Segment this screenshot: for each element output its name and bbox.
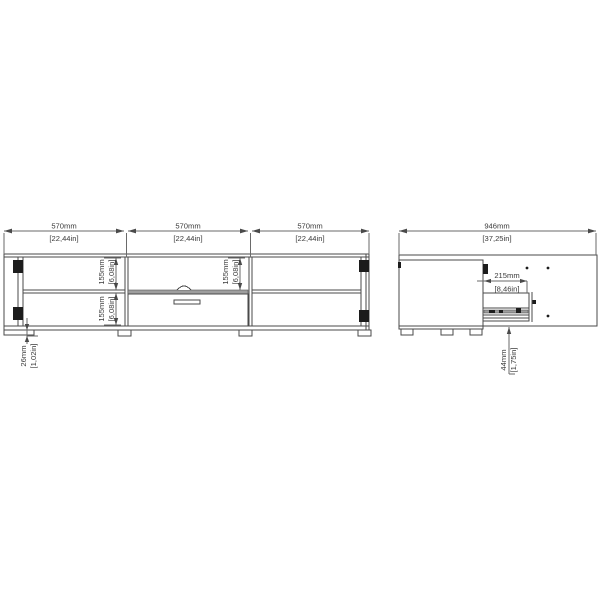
side-foot-3 — [470, 329, 482, 335]
dim-label-mm: 570mm — [297, 222, 322, 231]
technical-drawing-page: 570mm [22,44in] 570mm [22,44in] 570mm [2… — [0, 0, 600, 600]
dim-front-width-1: 570mm [22,44in] — [4, 222, 124, 244]
front-foot-3 — [239, 330, 252, 336]
dim-label-inch: [1,75in] — [509, 348, 518, 373]
side-view — [398, 255, 597, 335]
side-left-fitting — [398, 262, 401, 268]
dim-label-inch: [6,08in] — [107, 297, 116, 322]
drawer-handle-slot — [174, 300, 200, 304]
drawer-runner-stop — [516, 308, 521, 313]
dim-label-mm: 155mm — [97, 259, 106, 284]
dim-label-mm: 44mm — [499, 349, 508, 370]
side-cabinet-body — [399, 260, 483, 326]
dim-label-mm: 155mm — [221, 259, 230, 284]
dim-side-overall: 946mm [37,25in] — [399, 222, 596, 256]
dim-label-inch: [6,08in] — [231, 260, 240, 285]
dim-label-mm: 26mm — [19, 345, 28, 366]
side-catch-fitting — [483, 264, 488, 274]
dim-label-inch: [22,44in] — [173, 234, 202, 243]
front-view — [4, 254, 371, 336]
dim-label-inch: [6,08in] — [107, 260, 116, 285]
dim-label-mm: 215mm — [494, 271, 519, 280]
dim-front-width-3: 570mm [22,44in] — [252, 222, 369, 244]
drawer-edge-fitting — [533, 300, 537, 304]
dowel-hole-1 — [526, 267, 529, 270]
right-door-hinge-bottom — [359, 310, 369, 322]
dim-clearance: 44mm [1,75in] — [499, 327, 518, 374]
side-foot-2 — [441, 329, 453, 335]
dim-label-inch: [22,44in] — [49, 234, 78, 243]
side-foot-1 — [401, 329, 413, 335]
dim-label-inch: [37,25in] — [482, 234, 511, 243]
dowel-hole-3 — [547, 315, 550, 318]
front-foot-4 — [358, 330, 371, 336]
right-door-hinge-top — [359, 260, 369, 272]
dim-label-inch: [22,44in] — [295, 234, 324, 243]
dim-label-mm: 570mm — [51, 222, 76, 231]
dim-label-mm: 570mm — [175, 222, 200, 231]
left-door-hinge-bottom — [13, 307, 23, 320]
dim-label-inch: [8,46in] — [495, 285, 520, 294]
dim-label-mm: 155mm — [97, 296, 106, 321]
drawer-top-band — [128, 290, 248, 294]
front-plinth-left — [4, 330, 34, 335]
drawer-front — [128, 294, 248, 326]
side-drawer-extended — [483, 293, 529, 321]
tv-stand-dimension-drawing: 570mm [22,44in] 570mm [22,44in] 570mm [2… — [0, 0, 600, 600]
front-foot-2 — [118, 330, 131, 336]
dim-label-mm: 946mm — [484, 222, 509, 231]
dim-front-width-2: 570mm [22,44in] — [128, 222, 248, 244]
dowel-hole-2 — [547, 267, 550, 270]
dim-label-inch: [1,02in] — [29, 344, 38, 369]
left-door-hinge-top — [13, 260, 23, 273]
